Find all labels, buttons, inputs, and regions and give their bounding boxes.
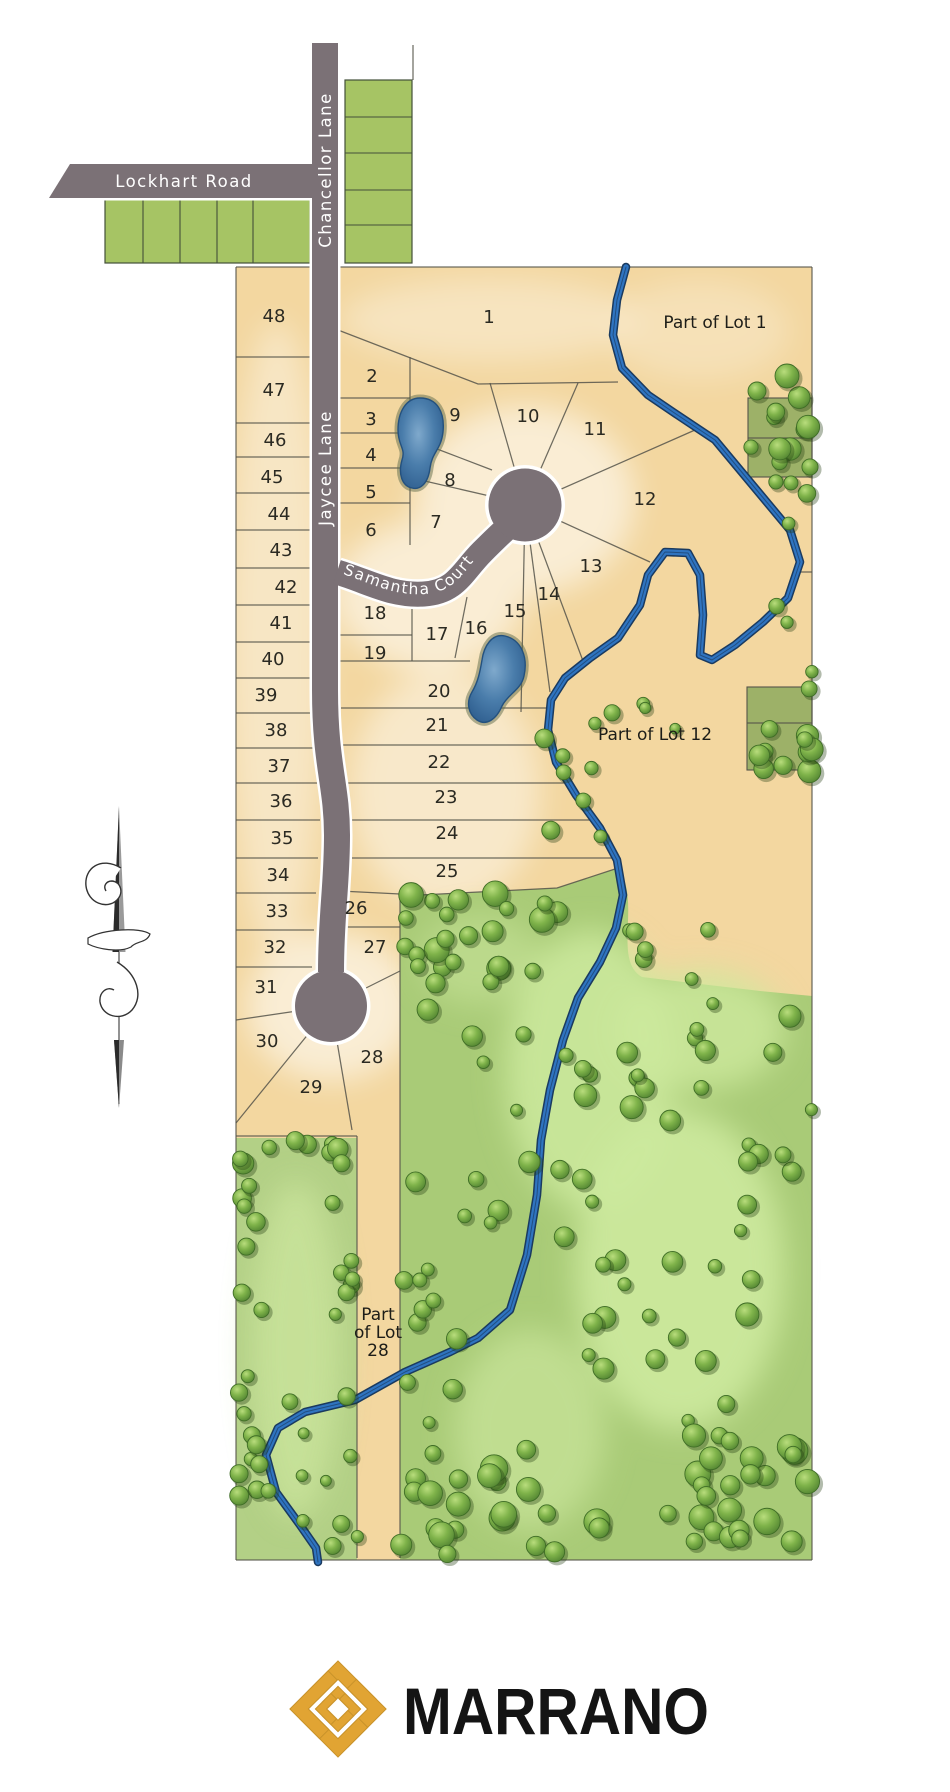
lot-33-label: 33 — [266, 901, 289, 922]
lot-17-label: 17 — [426, 624, 449, 645]
lot-43-label: 43 — [270, 540, 293, 561]
lot-38-label: 38 — [265, 720, 288, 741]
lot-25-label: 25 — [436, 861, 459, 882]
north-arrow — [86, 806, 150, 1108]
lot-31-label: 31 — [255, 977, 278, 998]
lot-16-label: 16 — [465, 618, 488, 639]
lockhart-road-label: Lockhart Road — [115, 172, 253, 191]
lot-13-label: 13 — [580, 556, 603, 577]
lot-35-label: 35 — [271, 828, 294, 849]
svg-text:of Lot: of Lot — [354, 1323, 402, 1343]
lot-12-label: 12 — [634, 489, 657, 510]
lot-9-label: 9 — [449, 405, 460, 426]
lot-34-label: 34 — [267, 865, 290, 886]
samantha-cul-de-sac — [489, 469, 562, 542]
lot-46-label: 46 — [264, 430, 287, 451]
lot-26-label: 26 — [345, 898, 368, 919]
lot-48-label: 48 — [263, 306, 286, 327]
lot-40-label: 40 — [262, 649, 285, 670]
lot-2-label: 2 — [366, 366, 377, 387]
lot-8-label: 8 — [444, 470, 455, 491]
lot-47-label: 47 — [263, 380, 286, 401]
lot-15-label: 15 — [504, 601, 527, 622]
lot-18-label: 18 — [364, 603, 387, 624]
part-of-lot-1-label: Part of Lot 1 — [663, 313, 766, 333]
lot-29-label: 29 — [300, 1077, 323, 1098]
lot-45-label: 45 — [261, 467, 284, 488]
lot-37-label: 37 — [268, 756, 291, 777]
site-plan-page: Lockhart Road Chancellor Lane Jaycee Lan… — [0, 0, 950, 1792]
marrano-logo: MARRANO — [290, 1661, 709, 1757]
marrano-emblem-icon — [290, 1661, 386, 1757]
lot-23-label: 23 — [435, 787, 458, 808]
lot-21-label: 21 — [426, 715, 449, 736]
lot-36-label: 36 — [270, 791, 293, 812]
lot-27-label: 27 — [364, 937, 387, 958]
part-of-lot-12-label: Part of Lot 12 — [598, 725, 712, 745]
svg-text:Part: Part — [361, 1305, 395, 1325]
lot-20-label: 20 — [428, 681, 451, 702]
lot-44-label: 44 — [268, 504, 291, 525]
lot-1-label: 1 — [483, 307, 494, 328]
lot-19-label: 19 — [364, 643, 387, 664]
lot-39-label: 39 — [255, 685, 278, 706]
lot-24-label: 24 — [436, 823, 459, 844]
lot-5-label: 5 — [365, 482, 376, 503]
lot-32-label: 32 — [264, 937, 287, 958]
lot-30-label: 30 — [256, 1031, 279, 1052]
top-green-lots — [105, 45, 413, 263]
lot-6-label: 6 — [365, 520, 376, 541]
lot-11-label: 11 — [584, 419, 607, 440]
marrano-wordmark: MARRANO — [403, 1674, 709, 1748]
jaycee-lane-label: Jaycee Lane — [316, 410, 335, 527]
lot-22-label: 22 — [428, 752, 451, 773]
lot-7-label: 7 — [430, 512, 441, 533]
jaycee-cul-de-sac — [295, 970, 367, 1042]
lot-41-label: 41 — [270, 613, 293, 634]
lot-14-label: 14 — [538, 584, 561, 605]
lot-42-label: 42 — [275, 577, 298, 598]
lot-3-label: 3 — [365, 409, 376, 430]
lot-4-label: 4 — [365, 445, 376, 466]
chancellor-lane-label: Chancellor Lane — [316, 92, 335, 247]
lot-28-label: 28 — [361, 1047, 384, 1068]
lot-10-label: 10 — [517, 406, 540, 427]
svg-text:28: 28 — [367, 1341, 389, 1361]
site-plan-map: Lockhart Road Chancellor Lane Jaycee Lan… — [0, 0, 950, 1792]
